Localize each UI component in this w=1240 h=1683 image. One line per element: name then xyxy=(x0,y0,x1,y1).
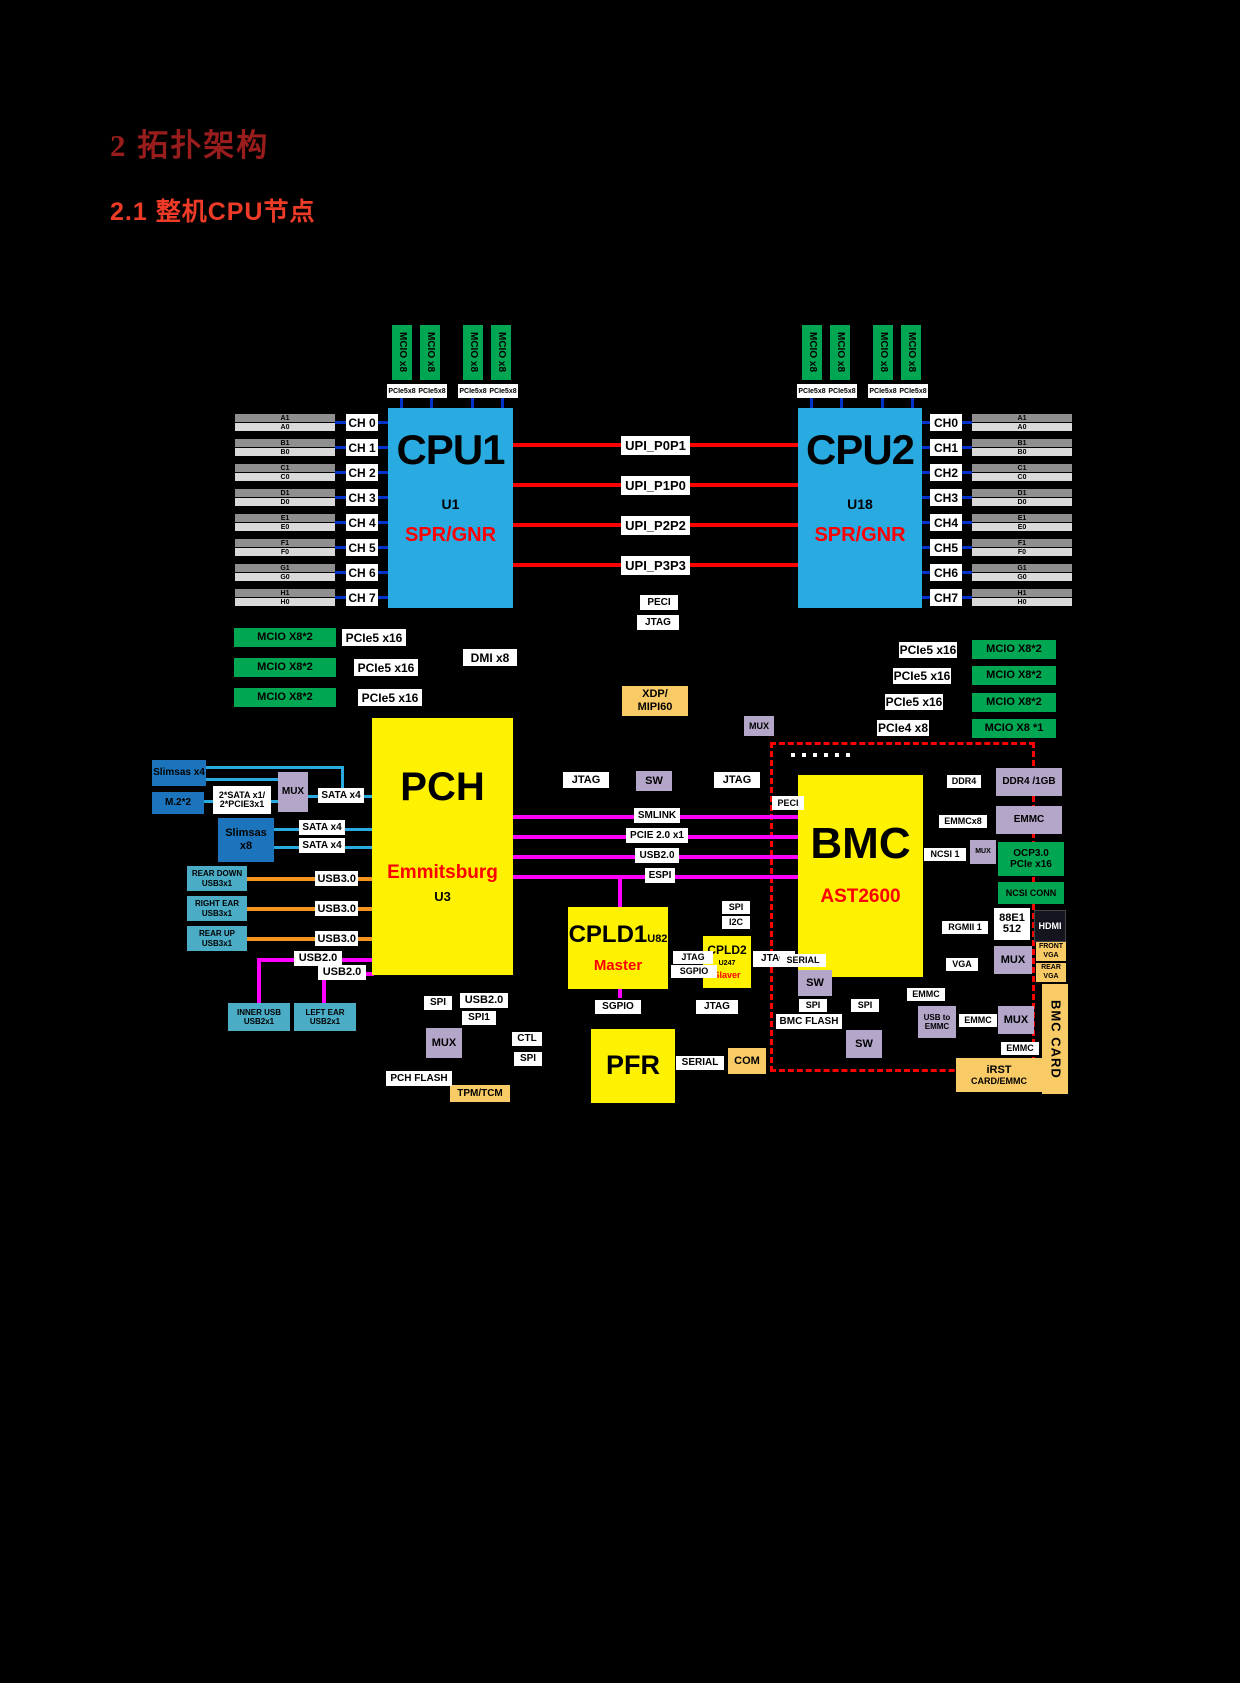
mcio-connector: MCIO x8 xyxy=(420,325,440,380)
bmc-signal-label xyxy=(802,753,806,757)
m2-connector: M.2*2 xyxy=(152,792,204,814)
pcie-bus-label: PCIe5 x16 xyxy=(885,694,943,710)
cpld2-title: CPLD2 xyxy=(707,944,746,958)
pcie-bus-label: PCIe4 x8 xyxy=(877,720,929,736)
channel-label: CH4 xyxy=(930,514,962,531)
spi-label: SPI xyxy=(514,1052,542,1066)
dimm-slot: A0 xyxy=(235,423,335,431)
dimm-slot: F0 xyxy=(235,548,335,556)
usb3-port-connector: REAR DOWN USB3x1 xyxy=(187,866,247,891)
emmc-label: EMMC xyxy=(907,988,945,1001)
usb2-port-name: INNER USB xyxy=(237,1008,281,1017)
rear-vga-connector: REAR VGA xyxy=(1036,963,1066,982)
channel-line xyxy=(962,446,972,449)
channel-label: CH6 xyxy=(930,564,962,581)
dimm-pair: B1 B0 xyxy=(235,439,335,456)
vga-label: VGA xyxy=(946,958,978,971)
cpu2-arch: SPR/GNR xyxy=(814,524,905,547)
memory-channel-row: CH3 D1 D0 xyxy=(922,489,1072,506)
usb3-bus-label: USB3.0 xyxy=(315,931,358,946)
mcio-connector: MCIO x8 xyxy=(830,325,850,380)
channel-label: CH0 xyxy=(930,414,962,431)
usb3-line xyxy=(247,907,315,911)
pcie-bus-label: PCIe5 x16 xyxy=(899,642,957,658)
dimm-slot: F1 xyxy=(235,539,335,547)
channel-label: CH5 xyxy=(930,539,962,556)
dimm-pair: G1 G0 xyxy=(235,564,335,581)
pfr-block: PFR xyxy=(591,1029,675,1103)
upi-link-row: UPI_P3P3 xyxy=(513,555,798,575)
bmc-signal-label xyxy=(835,753,839,757)
cpu1-title: CPU1 xyxy=(396,426,504,474)
usb2-bus-label: USB2.0 xyxy=(318,965,366,980)
upi-link-row: UPI_P1P0 xyxy=(513,475,798,495)
memory-channel-row: D1 D0 CH 3 xyxy=(235,489,388,506)
channel-line xyxy=(962,571,972,574)
dimm-slot: F0 xyxy=(972,548,1072,556)
mcio-connector: MCIO x8 xyxy=(901,325,921,380)
channel-line xyxy=(922,571,930,574)
pcie5x8-label: PCIe5x8 xyxy=(898,384,928,398)
espi-label: ESPI xyxy=(645,868,675,883)
pcie-link-line xyxy=(501,398,504,408)
usb3-port-row: RIGHT EAR USB3x1 USB3.0 xyxy=(187,896,372,921)
bmc-signal-row xyxy=(791,753,850,757)
pcie5x8-label: PCIe5x8 xyxy=(868,384,898,398)
pcie5x8-label: PCIe5x8 xyxy=(458,384,488,398)
dimm-column-right: CH0 A1 A0 CH1 B1 B0 CH2 C1 C0 CH3 xyxy=(922,414,1072,606)
memory-channel-row: CH6 G1 G0 xyxy=(922,564,1072,581)
pch-ref: U3 xyxy=(434,890,451,905)
channel-line xyxy=(378,596,388,599)
pch-codename: Emmitsburg xyxy=(387,862,498,884)
usb2-label: USB2.0 xyxy=(460,993,508,1008)
channel-line xyxy=(922,596,930,599)
channel-line xyxy=(962,521,972,524)
bmc-title: BMC xyxy=(810,819,910,870)
topology-diagram: 2 拓扑架构 2.1 整机CPU节点 MCIO x8 MCIO x8 MCIO … xyxy=(0,0,1240,1683)
memory-channel-row: CH4 E1 E0 xyxy=(922,514,1072,531)
dimm-slot: E1 xyxy=(972,514,1072,522)
channel-label: CH 2 xyxy=(346,464,378,481)
channel-line xyxy=(922,471,930,474)
dimm-slot: A1 xyxy=(972,414,1072,422)
irst-line2: CARD/EMMC xyxy=(971,1076,1027,1086)
dimm-slot: F1 xyxy=(972,539,1072,547)
channel-line xyxy=(335,571,346,574)
ncsi-label: NCSI 1 xyxy=(924,848,966,861)
channel-line xyxy=(335,521,346,524)
memory-channel-row: E1 E0 CH 4 xyxy=(235,514,388,531)
usb3-port-name: REAR UP xyxy=(199,929,235,939)
dmi-label: DMI x8 xyxy=(463,649,517,666)
ctl-label: CTL xyxy=(512,1032,542,1046)
dimm-slot: C1 xyxy=(972,464,1072,472)
channel-line xyxy=(378,546,388,549)
mcio-connector: MCIO X8*2 xyxy=(234,628,336,647)
rear-vga-line2: VGA xyxy=(1043,973,1058,981)
pcie20-label: PCIE 2.0 x1 xyxy=(626,828,688,843)
mcio-connector: MCIO x8 xyxy=(802,325,822,380)
dimm-pair: H1 H0 xyxy=(972,589,1072,606)
channel-line xyxy=(962,596,972,599)
spi-label: SPI xyxy=(851,999,879,1012)
dimm-slot: B1 xyxy=(972,439,1072,447)
dimm-slot: D0 xyxy=(972,498,1072,506)
channel-line xyxy=(335,421,346,424)
jtag-label: JTAG xyxy=(714,772,760,788)
channel-label: CH2 xyxy=(930,464,962,481)
bmc-signal-label xyxy=(791,753,795,757)
section-title: 2 拓扑架构 xyxy=(110,120,269,165)
dimm-slot: E1 xyxy=(235,514,335,522)
smlink-label: SMLINK xyxy=(634,808,680,823)
com-port-box: COM xyxy=(728,1048,766,1074)
usb-to-emmc-line1: USB to xyxy=(924,1013,951,1022)
usb3-port-row: REAR UP USB3x1 USB3.0 xyxy=(187,926,372,951)
channel-label: CH 4 xyxy=(346,514,378,531)
pcie5x8-label: PCIe5x8 xyxy=(417,384,447,398)
channel-label: CH1 xyxy=(930,439,962,456)
memory-channel-row: B1 B0 CH 1 xyxy=(235,439,388,456)
dimm-pair: F1 F0 xyxy=(235,539,335,556)
dimm-pair: A1 A0 xyxy=(972,414,1072,431)
dimm-slot: B1 xyxy=(235,439,335,447)
usb3-port-name: REAR DOWN xyxy=(192,869,242,879)
usb3-port-type: USB3x1 xyxy=(202,879,232,889)
ocp3-line1: OCP3.0 xyxy=(1013,848,1049,860)
channel-line xyxy=(962,471,972,474)
dimm-slot: E0 xyxy=(972,523,1072,531)
pcie-link-line xyxy=(810,398,813,408)
channel-line xyxy=(378,471,388,474)
mcio-connector: MCIO X8*2 xyxy=(234,688,336,707)
pcie-link-line xyxy=(430,398,433,408)
dimm-slot: H1 xyxy=(972,589,1072,597)
memory-channel-row: F1 F0 CH 5 xyxy=(235,539,388,556)
channel-line xyxy=(335,546,346,549)
sata-line xyxy=(206,778,278,781)
dimm-slot: H0 xyxy=(235,598,335,606)
front-vga-line2: VGA xyxy=(1043,952,1058,960)
jtag-label: JTAG xyxy=(696,1000,738,1014)
bmc-signal-label xyxy=(824,753,828,757)
mcio-connector: MCIO X8*2 xyxy=(972,666,1056,685)
usb-to-emmc-line2: EMMC xyxy=(925,1022,949,1031)
pcie-link-line xyxy=(400,398,403,408)
memory-channel-row: CH2 C1 C0 xyxy=(922,464,1072,481)
front-vga-line1: FRONT xyxy=(1039,943,1063,951)
cpu2-block: CPU2 U18 SPR/GNR xyxy=(798,408,922,608)
usb2-line xyxy=(257,958,261,1005)
dimm-slot: C1 xyxy=(235,464,335,472)
channel-line xyxy=(335,596,346,599)
dimm-slot: G1 xyxy=(972,564,1072,572)
spi-label: SPI xyxy=(799,999,827,1012)
usb3-line xyxy=(247,877,315,881)
dimm-slot: G1 xyxy=(235,564,335,572)
dimm-slot: D0 xyxy=(235,498,335,506)
pcie5x8-label: PCIe5x8 xyxy=(387,384,417,398)
pcie-link-line xyxy=(471,398,474,408)
memory-channel-row: CH0 A1 A0 xyxy=(922,414,1072,431)
dimm-slot: G0 xyxy=(972,573,1072,581)
channel-line xyxy=(378,446,388,449)
channel-line xyxy=(962,421,972,424)
usb-to-emmc-box: USB to EMMC xyxy=(918,1006,956,1038)
mcio-connector: MCIO X8*2 xyxy=(972,640,1056,659)
memory-channel-row: A1 A0 CH 0 xyxy=(235,414,388,431)
dimm-slot: H1 xyxy=(235,589,335,597)
memory-channel-row: C1 C0 CH 2 xyxy=(235,464,388,481)
ncsi-connector: NCSI CONN xyxy=(998,882,1064,904)
pcie-link-line xyxy=(881,398,884,408)
mcio-connector: MCIO x8 xyxy=(491,325,511,380)
cpu1-block: CPU1 U1 SPR/GNR xyxy=(388,408,513,608)
usb3-port-name: RIGHT EAR xyxy=(195,899,239,909)
usb3-line xyxy=(358,907,372,911)
mux-box: MUX xyxy=(426,1028,462,1058)
phy-line2: 512 xyxy=(1003,924,1021,935)
ddr4-module-box: DDR4 /1GB xyxy=(996,768,1062,796)
cpld-pfr-line xyxy=(618,989,622,998)
channel-line xyxy=(922,496,930,499)
bmc-chip: AST2600 xyxy=(820,886,900,908)
xdp-line2: MIPI60 xyxy=(638,701,673,714)
sata-adapter-line2: 2*PCIE3x1 xyxy=(220,800,265,809)
emmc-x8-label: EMMCx8 xyxy=(939,815,987,828)
usb3-line xyxy=(358,877,372,881)
channel-line xyxy=(922,421,930,424)
dimm-slot: A1 xyxy=(235,414,335,422)
usb3-port-type: USB3x1 xyxy=(202,909,232,919)
channel-label: CH3 xyxy=(930,489,962,506)
memory-channel-row: H1 H0 CH 7 xyxy=(235,589,388,606)
dimm-pair: C1 C0 xyxy=(235,464,335,481)
dimm-pair: D1 D0 xyxy=(235,489,335,506)
mcio-connector: MCIO X8 *1 xyxy=(972,719,1056,738)
channel-line xyxy=(378,496,388,499)
usb2-port-type: USB2x1 xyxy=(310,1017,340,1026)
sata-mux-box: MUX xyxy=(278,772,308,812)
cpu1-ref: U1 xyxy=(442,496,460,512)
serial-label: SERIAL xyxy=(780,954,826,967)
dimm-slot: D1 xyxy=(972,489,1072,497)
cpld2-ref: U247 xyxy=(719,960,736,968)
cpld1-name: CPLD1 xyxy=(569,921,648,948)
slimsas-x8-connector: Slimsas x8 xyxy=(218,818,274,862)
memory-channel-row: CH1 B1 B0 xyxy=(922,439,1072,456)
dimm-pair: B1 B0 xyxy=(972,439,1072,456)
phy-88e1512-label: 88E1 512 xyxy=(994,908,1030,940)
usb3-bus-label: USB3.0 xyxy=(315,901,358,916)
mux-box: MUX xyxy=(998,1006,1034,1034)
usb3-port-row: REAR DOWN USB3x1 USB3.0 xyxy=(187,866,372,891)
usb3-ports: REAR DOWN USB3x1 USB3.0 RIGHT EAR USB3x1… xyxy=(187,866,372,951)
dimm-pair: D1 D0 xyxy=(972,489,1072,506)
upi-link-row: UPI_P2P2 xyxy=(513,515,798,535)
emmc-box: EMMC xyxy=(996,806,1062,834)
bmc-card-strip: BMC CARD xyxy=(1042,984,1068,1094)
spi1-label: SPI1 xyxy=(462,1011,496,1025)
upi-label: UPI_P2P2 xyxy=(621,516,690,535)
i2c-label: I2C xyxy=(722,916,750,929)
memory-channel-row: CH5 F1 F0 xyxy=(922,539,1072,556)
hdmi-connector: HDMI xyxy=(1034,910,1066,942)
sata-bus-label: SATA x4 xyxy=(318,788,364,803)
channel-line xyxy=(922,546,930,549)
pch-block: PCH Emmitsburg U3 xyxy=(372,718,513,975)
memory-channel-row: G1 G0 CH 6 xyxy=(235,564,388,581)
usb2-port-connector: INNER USB USB2x1 xyxy=(228,1003,290,1031)
dimm-pair: A1 A0 xyxy=(235,414,335,431)
irst-line1: iRST xyxy=(986,1064,1011,1077)
dimm-slot: C0 xyxy=(972,473,1072,481)
upi-links: UPI_P0P1 UPI_P1P0 UPI_P2P2 UPI_P3P3 xyxy=(513,435,798,575)
dimm-slot: B0 xyxy=(235,448,335,456)
channel-label: CH 7 xyxy=(346,589,378,606)
bmc-signal-label xyxy=(846,753,850,757)
upi-label: UPI_P3P3 xyxy=(621,556,690,575)
cpld1-title: CPLD1U82 xyxy=(569,921,668,949)
cpld1-ref: U82 xyxy=(647,933,667,945)
cpu2-ref: U18 xyxy=(847,496,873,512)
pcie5x8-label: PCIe5x8 xyxy=(488,384,518,398)
dimm-pair: E1 E0 xyxy=(972,514,1072,531)
pch-title: PCH xyxy=(400,764,484,810)
sw-box: SW xyxy=(636,771,672,791)
mux-box: MUX xyxy=(744,716,774,736)
pcie5x8-label: PCIe5x8 xyxy=(827,384,857,398)
emmc-label: EMMC xyxy=(959,1014,997,1027)
dimm-pair: G1 G0 xyxy=(972,564,1072,581)
dimm-pair: C1 C0 xyxy=(972,464,1072,481)
bmc-flash-label: BMC FLASH xyxy=(776,1014,842,1029)
mcio-connector: MCIO x8 xyxy=(392,325,412,380)
dimm-slot: G0 xyxy=(235,573,335,581)
mux-box: MUX xyxy=(970,840,996,864)
usb2-port-type: USB2x1 xyxy=(244,1017,274,1026)
pcie-link-line xyxy=(911,398,914,408)
ddr4-label: DDR4 xyxy=(947,775,981,788)
xdp-line1: XDP/ xyxy=(642,688,668,701)
upi-link-row: UPI_P0P1 xyxy=(513,435,798,455)
dimm-column-left: A1 A0 CH 0 B1 B0 CH 1 C1 C0 CH 2 D1 xyxy=(235,414,388,606)
mcio-connector: MCIO x8 xyxy=(463,325,483,380)
pcie-bus-label: PCIe5 x16 xyxy=(358,689,422,706)
channel-label: CH7 xyxy=(930,589,962,606)
usb2-port-name: LEFT EAR xyxy=(305,1008,344,1017)
jtag-label: JTAG xyxy=(673,951,713,964)
espi-drop-line xyxy=(618,879,622,907)
dimm-pair: H1 H0 xyxy=(235,589,335,606)
channel-line xyxy=(378,421,388,424)
channel-line xyxy=(378,571,388,574)
subsection-title: 2.1 整机CPU节点 xyxy=(110,192,315,228)
dimm-pair: F1 F0 xyxy=(972,539,1072,556)
pch-flash-label: PCH FLASH xyxy=(386,1071,452,1086)
peci-label: PECI xyxy=(640,595,678,610)
xdp-debug-port: XDP/ MIPI60 xyxy=(622,686,688,716)
pcie-bus-label: PCIe5 x16 xyxy=(354,659,418,676)
dimm-slot: C0 xyxy=(235,473,335,481)
channel-line xyxy=(922,521,930,524)
channel-line xyxy=(962,546,972,549)
mcio-connector: MCIO X8*2 xyxy=(234,658,336,677)
sata-adapter-label: 2*SATA x1/ 2*PCIE3x1 xyxy=(213,786,271,814)
dimm-slot: A0 xyxy=(972,423,1072,431)
channel-line xyxy=(962,496,972,499)
jtag-label: JTAG xyxy=(563,772,609,788)
sgpio-label: SGPIO xyxy=(671,965,717,978)
sata-line xyxy=(206,766,344,769)
usb3-line xyxy=(358,937,372,941)
cpu1-arch: SPR/GNR xyxy=(405,524,496,547)
pcie-link-line xyxy=(840,398,843,408)
tpm-tcm-box: TPM/TCM xyxy=(450,1085,510,1102)
channel-line xyxy=(335,446,346,449)
rear-vga-line1: REAR xyxy=(1041,964,1061,972)
channel-line xyxy=(335,496,346,499)
usb3-port-connector: REAR UP USB3x1 xyxy=(187,926,247,951)
front-vga-connector: FRONT VGA xyxy=(1036,942,1066,961)
usb2-link-label: USB2.0 xyxy=(635,848,679,863)
channel-line xyxy=(335,471,346,474)
channel-line xyxy=(922,446,930,449)
dimm-slot: D1 xyxy=(235,489,335,497)
emmc-label: EMMC xyxy=(1001,1042,1039,1055)
ocp3-connector: OCP3.0 PCIe x16 xyxy=(998,842,1064,876)
sw-box: SW xyxy=(846,1030,882,1058)
sgpio-label: SGPIO xyxy=(595,1000,641,1014)
pcie-bus-label: PCIe5 x16 xyxy=(342,629,406,646)
channel-label: CH 1 xyxy=(346,439,378,456)
upi-label: UPI_P0P1 xyxy=(621,436,690,455)
channel-label: CH 6 xyxy=(346,564,378,581)
cpld1-block: CPLD1U82 Master xyxy=(568,907,668,989)
mcio-connector: MCIO X8*2 xyxy=(972,693,1056,712)
channel-label: CH 0 xyxy=(346,414,378,431)
memory-channel-row: CH7 H1 H0 xyxy=(922,589,1072,606)
mux-box: MUX xyxy=(994,946,1032,974)
usb3-line xyxy=(247,937,315,941)
spi-label: SPI xyxy=(424,996,452,1010)
serial-label: SERIAL xyxy=(676,1056,724,1070)
sata-bus-label: SATA x4 xyxy=(299,820,345,835)
cpld2-role: Slaver xyxy=(713,970,740,980)
sata-bus-label: SATA x4 xyxy=(299,838,345,853)
peci-label: PECI xyxy=(772,796,804,810)
upi-label: UPI_P1P0 xyxy=(621,476,690,495)
usb3-bus-label: USB3.0 xyxy=(315,871,358,886)
cpu2-title: CPU2 xyxy=(806,426,914,474)
jtag-label: JTAG xyxy=(637,615,679,630)
channel-label: CH 3 xyxy=(346,489,378,506)
channel-label: CH 5 xyxy=(346,539,378,556)
irst-card-box: iRST CARD/EMMC xyxy=(956,1058,1042,1092)
rgmii-label: RGMII 1 xyxy=(942,921,988,934)
slimsas-x4-connector: Slimsas x4 xyxy=(152,760,206,786)
dimm-slot: H0 xyxy=(972,598,1072,606)
channel-line xyxy=(378,521,388,524)
usb2-port-connector: LEFT EAR USB2x1 xyxy=(294,1003,356,1031)
bmc-block: BMC AST2600 xyxy=(798,775,923,977)
pcie-bus-label: PCIe5 x16 xyxy=(893,668,951,684)
spi-label: SPI xyxy=(722,901,750,914)
mcio-connector: MCIO x8 xyxy=(873,325,893,380)
dimm-pair: E1 E0 xyxy=(235,514,335,531)
dimm-slot: B0 xyxy=(972,448,1072,456)
